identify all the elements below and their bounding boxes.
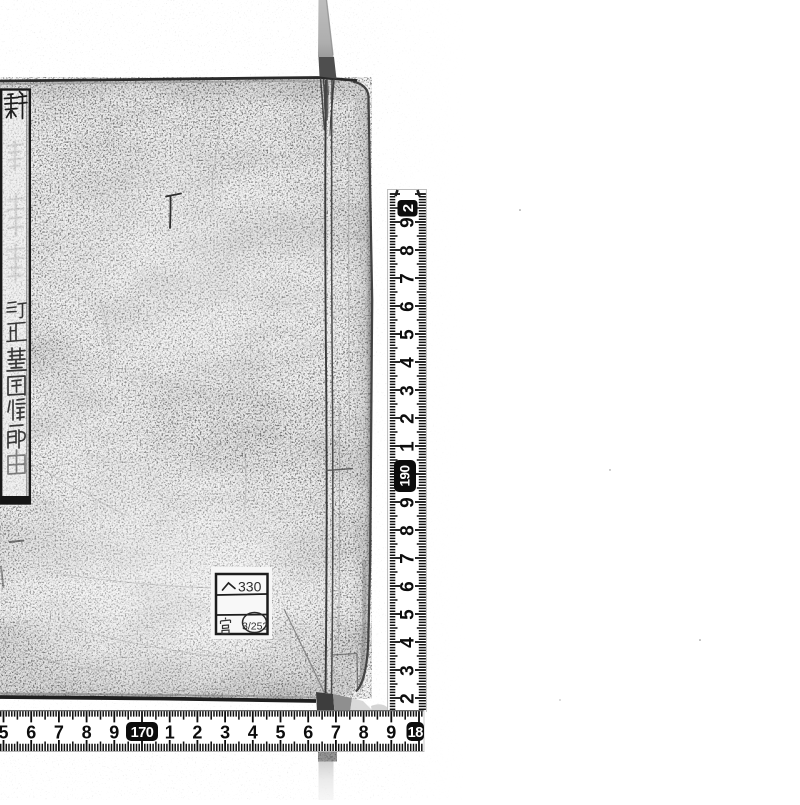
- svg-text:5: 5: [275, 723, 285, 743]
- svg-text:6: 6: [303, 723, 313, 743]
- svg-text:9: 9: [398, 497, 419, 508]
- svg-text:8: 8: [398, 245, 419, 256]
- svg-text:190: 190: [398, 465, 413, 486]
- svg-text:5: 5: [398, 609, 419, 620]
- svg-text:3: 3: [398, 385, 419, 396]
- svg-text:4: 4: [398, 357, 419, 368]
- svg-text:2: 2: [192, 723, 202, 743]
- svg-text:7: 7: [331, 723, 341, 743]
- svg-text:8: 8: [82, 723, 92, 743]
- svg-text:6: 6: [398, 581, 419, 592]
- svg-text:4: 4: [248, 723, 258, 743]
- svg-text:3/252: 3/252: [242, 621, 268, 633]
- svg-text:9: 9: [386, 723, 396, 743]
- svg-text:1: 1: [398, 441, 419, 452]
- svg-text:5: 5: [0, 723, 9, 743]
- svg-text:4: 4: [398, 637, 419, 648]
- svg-text:7: 7: [398, 273, 419, 284]
- svg-text:330: 330: [238, 579, 262, 595]
- svg-text:2: 2: [400, 204, 417, 212]
- svg-text:7: 7: [398, 553, 419, 564]
- svg-text:9: 9: [398, 217, 419, 228]
- svg-text:3: 3: [220, 723, 230, 743]
- svg-text:7: 7: [54, 723, 64, 743]
- svg-text:2: 2: [398, 413, 419, 424]
- svg-text:5: 5: [398, 329, 419, 340]
- svg-text:1: 1: [165, 723, 175, 743]
- svg-text:9: 9: [109, 723, 119, 743]
- svg-text:8: 8: [359, 723, 369, 743]
- svg-text:6: 6: [26, 723, 36, 743]
- svg-text:18: 18: [408, 725, 424, 741]
- svg-text:3: 3: [398, 665, 419, 676]
- svg-text:170: 170: [131, 725, 154, 741]
- svg-text:6: 6: [398, 301, 419, 312]
- svg-text:2: 2: [398, 693, 419, 704]
- svg-text:8: 8: [398, 525, 419, 536]
